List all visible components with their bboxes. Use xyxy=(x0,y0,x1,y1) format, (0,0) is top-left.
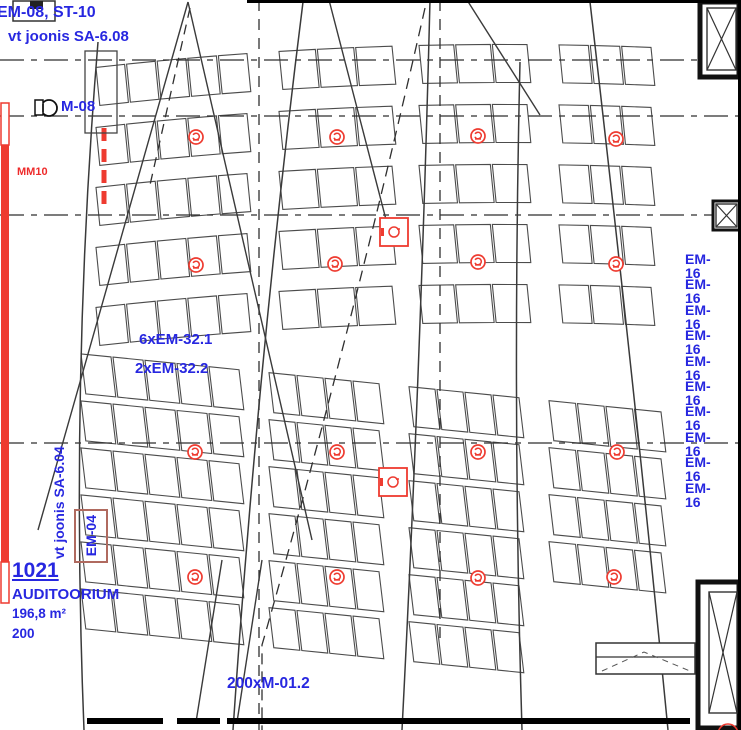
cad-floor-plan-view: { "labels": { "top_ref": "EM-08, ST-10",… xyxy=(0,0,741,730)
seat xyxy=(297,611,328,654)
seat xyxy=(145,595,180,638)
beam-outline xyxy=(596,643,695,674)
seat xyxy=(177,458,212,501)
ceiling-fixture-symbol xyxy=(610,445,624,459)
seat xyxy=(325,519,356,562)
ref-label-em08-st10: EM-08, ST-10 xyxy=(0,5,96,21)
ceiling-fixture-symbol xyxy=(471,571,485,585)
seat xyxy=(578,404,609,447)
seat xyxy=(297,376,328,419)
seat xyxy=(157,118,189,159)
red-wall-outline xyxy=(1,562,9,603)
ceiling-fixture-symbol xyxy=(471,255,485,269)
em04-junction-box: EM-04 xyxy=(74,509,108,563)
room-area: 196,8 m² xyxy=(12,607,66,621)
seat xyxy=(113,545,148,588)
ceiling-fixture-symbol xyxy=(330,570,344,584)
seat xyxy=(465,392,496,435)
seat xyxy=(218,174,250,214)
seat xyxy=(493,536,524,579)
seat xyxy=(590,285,623,324)
seat xyxy=(209,414,244,457)
ceiling-fixture-symbol xyxy=(189,258,203,272)
seat xyxy=(209,367,244,410)
seat xyxy=(145,501,180,544)
seat xyxy=(409,622,440,665)
seat xyxy=(549,401,580,444)
seat xyxy=(279,169,319,209)
seat xyxy=(559,165,592,204)
seat xyxy=(549,495,580,538)
aisle-curve xyxy=(516,62,522,730)
ceiling-fixture-symbol xyxy=(330,445,344,459)
seat xyxy=(356,286,396,325)
ceiling-fixture-symbol xyxy=(330,130,344,144)
ceiling-fixture-symbol xyxy=(609,132,623,146)
seat xyxy=(465,533,496,576)
seat xyxy=(157,238,189,279)
seat xyxy=(317,168,357,208)
seat xyxy=(492,164,530,202)
seat xyxy=(578,451,609,494)
seat xyxy=(559,285,592,324)
seat xyxy=(317,48,357,88)
seat xyxy=(177,599,212,642)
sight-line xyxy=(329,0,390,235)
aisle-curve xyxy=(402,0,430,730)
seat xyxy=(622,46,655,85)
seat xyxy=(177,505,212,548)
seat xyxy=(419,225,457,264)
seat xyxy=(269,608,300,651)
seat xyxy=(113,451,148,494)
seat xyxy=(456,164,494,202)
seat xyxy=(419,285,457,324)
floor-box-symbol xyxy=(379,468,407,496)
seat xyxy=(559,225,592,264)
seat xyxy=(269,467,300,510)
seat xyxy=(96,64,128,105)
label-2xem322: 2xEM-32.2 xyxy=(135,361,208,376)
seat xyxy=(325,472,356,515)
ref-label-see-drawing-sa608: vt joonis SA-6.08 xyxy=(8,29,129,44)
seat xyxy=(549,448,580,491)
seat xyxy=(492,224,530,262)
seat xyxy=(590,165,623,204)
seat xyxy=(113,404,148,447)
seat xyxy=(279,289,319,329)
seat xyxy=(96,124,128,165)
seat xyxy=(218,294,250,334)
seat xyxy=(145,454,180,497)
seat xyxy=(81,401,116,444)
label-mm10: MM10 xyxy=(17,167,48,178)
seat xyxy=(456,44,494,82)
seat xyxy=(218,114,250,154)
seat xyxy=(559,45,592,84)
seat xyxy=(145,407,180,450)
seat xyxy=(465,580,496,623)
seat xyxy=(353,616,384,659)
seat xyxy=(622,106,655,145)
ceiling-fixture-symbol xyxy=(609,257,623,271)
sight-line xyxy=(237,560,262,722)
seat xyxy=(353,522,384,565)
seat xyxy=(409,528,440,571)
aisle-curve xyxy=(79,42,98,730)
label-6xem321: 6xEM-32.1 xyxy=(139,332,212,347)
seat xyxy=(437,484,468,527)
seat xyxy=(437,531,468,574)
seat xyxy=(81,448,116,491)
seat xyxy=(297,517,328,560)
ceiling-fixture-symbol xyxy=(607,570,621,584)
seat xyxy=(409,575,440,618)
device-label-m08: M-08 xyxy=(61,99,95,114)
sight-line xyxy=(467,0,540,115)
seat xyxy=(279,49,319,89)
seat xyxy=(353,381,384,424)
seat xyxy=(188,176,220,216)
seat xyxy=(127,61,159,102)
seat xyxy=(549,542,580,585)
room-capacity: 200 xyxy=(12,627,35,641)
seat xyxy=(492,104,530,142)
seat xyxy=(622,166,655,205)
equipment-rect xyxy=(85,51,117,133)
em16-label: EM-16 xyxy=(685,481,711,509)
ceiling-fixture-symbol xyxy=(188,445,202,459)
seat xyxy=(437,390,468,433)
ref-label-see-drawing-sa604: vt joonis SA-6.04 xyxy=(52,423,66,559)
em16-label: EM-16 xyxy=(685,328,711,356)
seat xyxy=(578,498,609,541)
floor-box-symbol xyxy=(380,218,408,246)
floor-box-symbol-tab xyxy=(381,228,384,236)
seat xyxy=(465,486,496,529)
seat xyxy=(157,178,189,219)
ceiling-fixture-symbol xyxy=(189,130,203,144)
seat xyxy=(493,489,524,532)
em16-label: EM-16 xyxy=(685,455,711,483)
red-wall-solid xyxy=(1,145,9,562)
seat xyxy=(409,387,440,430)
seat xyxy=(127,241,159,282)
seat xyxy=(325,613,356,656)
seat xyxy=(269,420,300,463)
seat xyxy=(353,428,384,471)
seat xyxy=(209,461,244,504)
seat xyxy=(356,166,396,205)
seat xyxy=(622,226,655,265)
seat xyxy=(465,627,496,670)
seat xyxy=(356,46,396,85)
seat xyxy=(493,442,524,485)
seat xyxy=(269,514,300,557)
ceiling-fixture-symbol xyxy=(328,257,342,271)
sight-line xyxy=(196,560,222,722)
seat xyxy=(606,500,637,543)
seat xyxy=(622,286,655,325)
m08-device-flange xyxy=(35,100,43,115)
aisle-curve xyxy=(590,2,668,730)
floor-plan-svg xyxy=(0,0,741,730)
seat xyxy=(353,569,384,612)
seat xyxy=(635,456,666,499)
seat xyxy=(96,184,128,225)
seat xyxy=(188,56,220,96)
seat xyxy=(578,545,609,588)
room-number: 1021 xyxy=(12,560,59,581)
seat xyxy=(209,508,244,551)
seat xyxy=(559,105,592,144)
seat xyxy=(493,395,524,438)
seat xyxy=(127,121,159,162)
seat xyxy=(297,423,328,466)
ceiling-fixture-symbol xyxy=(471,445,485,459)
seat xyxy=(96,244,128,285)
seat xyxy=(145,548,180,591)
seat xyxy=(456,284,494,322)
seat xyxy=(635,503,666,546)
ceiling-fixture-symbol xyxy=(188,570,202,584)
seat xyxy=(209,555,244,598)
seat xyxy=(606,453,637,496)
seat xyxy=(437,625,468,668)
seat xyxy=(297,470,328,513)
seat xyxy=(437,578,468,621)
ceiling-fixture-symbol xyxy=(471,129,485,143)
seat xyxy=(492,284,530,322)
seat xyxy=(317,288,357,328)
seat xyxy=(113,498,148,541)
label-em04: EM-04 xyxy=(84,515,98,556)
label-200xm012: 200xM-01.2 xyxy=(227,676,310,692)
room-name: AUDITOORIUM xyxy=(12,587,119,602)
seat xyxy=(419,45,457,84)
seat xyxy=(269,373,300,416)
seat xyxy=(279,229,319,269)
red-wall-outline xyxy=(1,103,9,145)
seat xyxy=(297,564,328,607)
seat xyxy=(419,105,457,144)
floor-box-symbol-tab xyxy=(380,478,383,486)
